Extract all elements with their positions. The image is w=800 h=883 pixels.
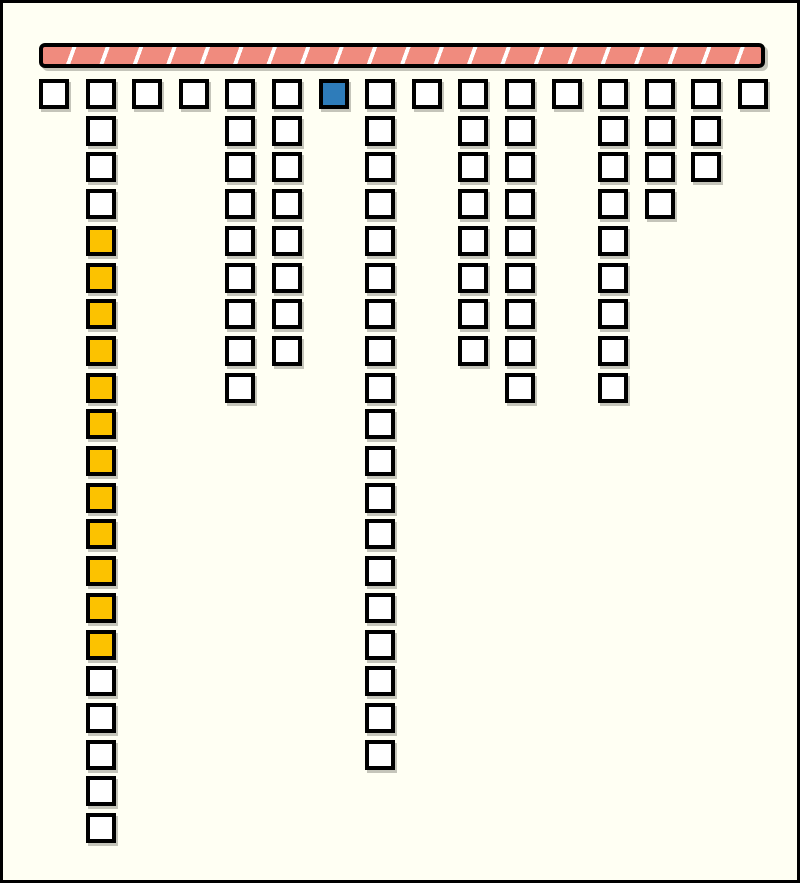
cell [365,703,395,733]
cell-highlight [86,226,116,256]
cell-highlight [86,299,116,329]
cell [738,79,768,109]
cell [179,79,209,109]
cell-highlight [86,373,116,403]
cell [505,79,535,109]
cell [458,79,488,109]
cell [505,116,535,146]
cell [365,336,395,366]
cell [272,116,302,146]
cell [365,483,395,513]
cell [598,152,628,182]
cell [225,79,255,109]
cell [365,740,395,770]
cell [365,226,395,256]
cell [365,299,395,329]
cell-highlight [86,519,116,549]
cell [365,446,395,476]
cell [505,226,535,256]
cell [272,152,302,182]
cell [225,373,255,403]
cell [412,79,442,109]
cell [365,373,395,403]
cell [458,152,488,182]
cell-highlight [86,556,116,586]
cell [598,373,628,403]
diagram-frame [0,0,800,883]
cell [645,189,675,219]
cell [86,189,116,219]
cell [505,152,535,182]
cell [365,593,395,623]
cell [365,666,395,696]
cell [598,263,628,293]
cell [598,336,628,366]
cell [272,189,302,219]
cell [39,79,69,109]
cell [225,263,255,293]
cell [598,226,628,256]
cell-highlight [86,483,116,513]
cell [458,336,488,366]
cell [272,263,302,293]
cell [365,116,395,146]
cell [365,630,395,660]
cell [645,152,675,182]
cell [691,116,721,146]
cell [598,189,628,219]
cell-highlight [86,593,116,623]
cell [86,740,116,770]
cell-highlight [86,630,116,660]
striped-header-bar [39,43,765,68]
cell-highlight [86,263,116,293]
cell [86,776,116,806]
cell-highlight [86,336,116,366]
cell [86,116,116,146]
cell [225,226,255,256]
cell [86,666,116,696]
cell [458,189,488,219]
cell [691,152,721,182]
cell [505,373,535,403]
cell [598,116,628,146]
cell [225,336,255,366]
cell [365,189,395,219]
cell [458,299,488,329]
cell-highlight [86,409,116,439]
cell [365,556,395,586]
cell [645,79,675,109]
cell [225,189,255,219]
cell [272,299,302,329]
cell [132,79,162,109]
cell [458,263,488,293]
cell [86,813,116,843]
cell [225,299,255,329]
cell-active [319,79,349,109]
cell [272,79,302,109]
cell [365,152,395,182]
cell [365,519,395,549]
cell [598,299,628,329]
cell [225,116,255,146]
cell [645,116,675,146]
cell [365,79,395,109]
cell [225,152,255,182]
cell [272,336,302,366]
cell [691,79,721,109]
cell [552,79,582,109]
cell [86,79,116,109]
cell [365,409,395,439]
cell [458,116,488,146]
cell [365,263,395,293]
cell [505,189,535,219]
cell [272,226,302,256]
cell [458,226,488,256]
cell [505,299,535,329]
cell [505,336,535,366]
cell [598,79,628,109]
cell [86,703,116,733]
cell-highlight [86,446,116,476]
cell [505,263,535,293]
cell [86,152,116,182]
